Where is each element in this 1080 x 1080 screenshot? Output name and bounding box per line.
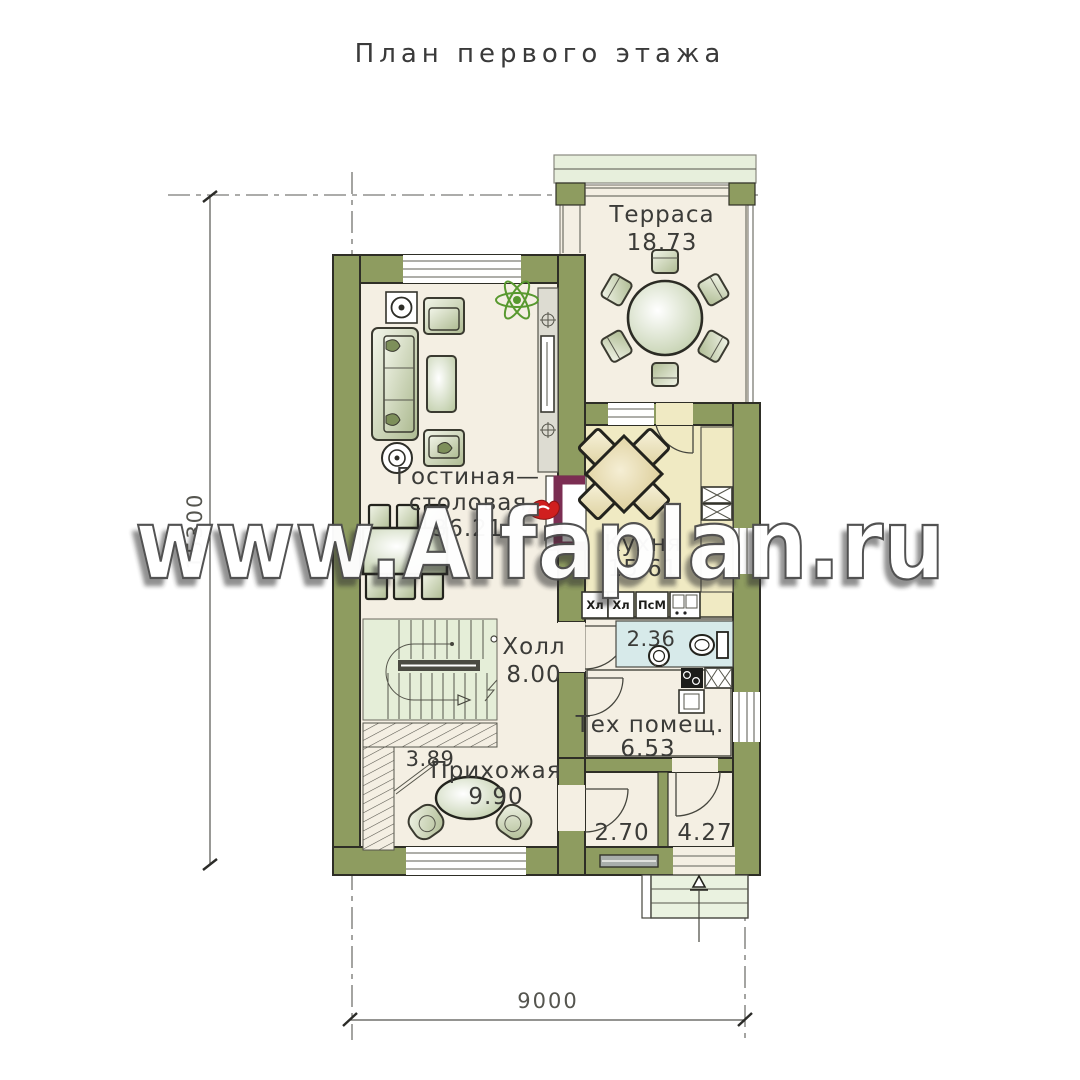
terrace-post-left xyxy=(556,183,585,205)
terrace-area: 18.73 xyxy=(627,230,698,256)
window-entry-bottom xyxy=(406,847,526,875)
terrace-name: Терраса xyxy=(608,202,714,228)
coffee-table xyxy=(427,356,456,412)
window-kitchen-terrace xyxy=(608,403,654,425)
bathroom: 2.36 xyxy=(616,621,733,667)
living-name-1: Гостиная— xyxy=(396,464,540,490)
toilet-icon xyxy=(690,632,728,658)
floor-plan-drawing: План первого этажа Терраса 18.7 xyxy=(0,0,1080,1080)
vestibule-area: 2.70 xyxy=(594,820,649,846)
wall-tambour-divider xyxy=(658,772,668,858)
window-living-top xyxy=(403,255,521,283)
floor-plan-page: План первого этажа Терраса 18.7 xyxy=(0,0,1080,1080)
dimension-bottom-value: 9000 xyxy=(517,989,578,1013)
closet-hatch-top xyxy=(363,723,497,747)
hall-name: Холл xyxy=(502,634,565,660)
terrace-post-right xyxy=(729,183,755,205)
speaker-top-icon xyxy=(386,292,417,323)
terrace-round-table xyxy=(628,281,702,355)
armchair-top xyxy=(424,298,464,334)
wall-right xyxy=(733,403,760,875)
wc-area: 2.36 xyxy=(627,627,676,651)
window-vestibule xyxy=(600,855,658,867)
watermark: www.Alfaplan.ru xyxy=(135,488,945,601)
entrance-opening xyxy=(673,847,735,875)
tech-name: Тех помещ. xyxy=(575,712,725,738)
rack-icon xyxy=(705,668,732,688)
boiler-icon xyxy=(679,690,704,713)
sofa xyxy=(372,328,418,440)
dimension-bottom: 9000 xyxy=(343,989,752,1026)
entry-name: Прихожая xyxy=(430,758,561,784)
porch-room-area: 4.27 xyxy=(677,820,732,846)
closet-hatch-left xyxy=(363,747,394,850)
page-title: План первого этажа xyxy=(355,39,726,69)
stair-newel xyxy=(491,636,497,642)
tech-area: 6.53 xyxy=(620,736,675,762)
entrance-steps xyxy=(642,875,748,942)
boiler-stove-icon xyxy=(681,668,703,688)
tv-unit xyxy=(538,288,558,472)
hall-area: 8.00 xyxy=(506,662,561,688)
window-right-lower xyxy=(733,692,760,742)
armchair-bottom xyxy=(424,430,464,466)
entry-area: 9.90 xyxy=(468,784,523,810)
